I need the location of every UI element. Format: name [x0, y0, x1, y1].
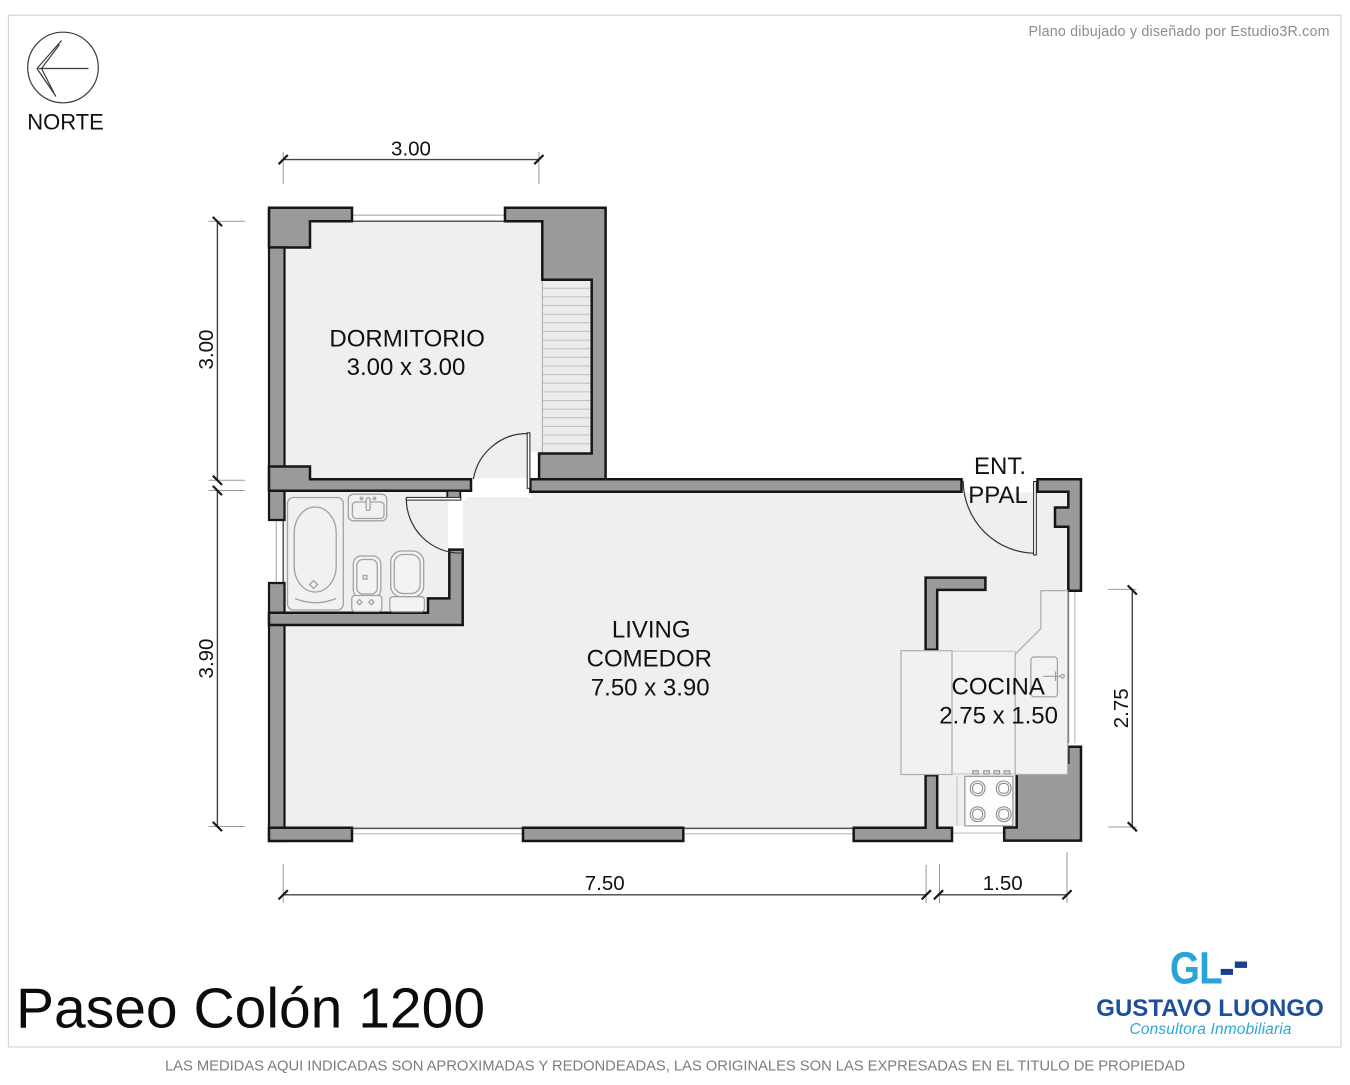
svg-text:Consultora Inmobiliaria: Consultora Inmobiliaria [1130, 1021, 1292, 1038]
svg-text:7.50: 7.50 [585, 872, 625, 895]
svg-text:DORMITORIO: DORMITORIO [329, 325, 485, 352]
svg-text:NORTE: NORTE [27, 110, 104, 135]
svg-text:GUSTAVO LUONGO: GUSTAVO LUONGO [1096, 995, 1324, 1022]
svg-text:7.50 x 3.90: 7.50 x 3.90 [591, 675, 710, 702]
svg-text:COMEDOR: COMEDOR [587, 645, 712, 672]
svg-text:ENT.: ENT. [974, 453, 1026, 480]
svg-text:2.75: 2.75 [1110, 688, 1133, 728]
svg-text:LAS MEDIDAS AQUI INDICADAS SON: LAS MEDIDAS AQUI INDICADAS SON APROXIMAD… [165, 1059, 1185, 1075]
svg-text:3.90: 3.90 [195, 639, 218, 679]
svg-text:Plano dibujado y diseñado por: Plano dibujado y diseñado por Estudio3R.… [1029, 24, 1330, 40]
svg-text:GL: GL [1170, 942, 1222, 993]
svg-text:3.00: 3.00 [391, 138, 431, 161]
svg-text:Paseo Colón 1200: Paseo Colón 1200 [16, 976, 485, 1040]
svg-text:2.75 x 1.50: 2.75 x 1.50 [939, 703, 1058, 730]
svg-text:COCINA: COCINA [952, 674, 1045, 701]
svg-text:PPAL: PPAL [968, 482, 1028, 509]
svg-text:3.00 x 3.00: 3.00 x 3.00 [347, 354, 466, 381]
svg-text:LIVING: LIVING [612, 616, 691, 643]
svg-text:1.50: 1.50 [983, 872, 1023, 895]
svg-text:3.00: 3.00 [195, 330, 218, 370]
